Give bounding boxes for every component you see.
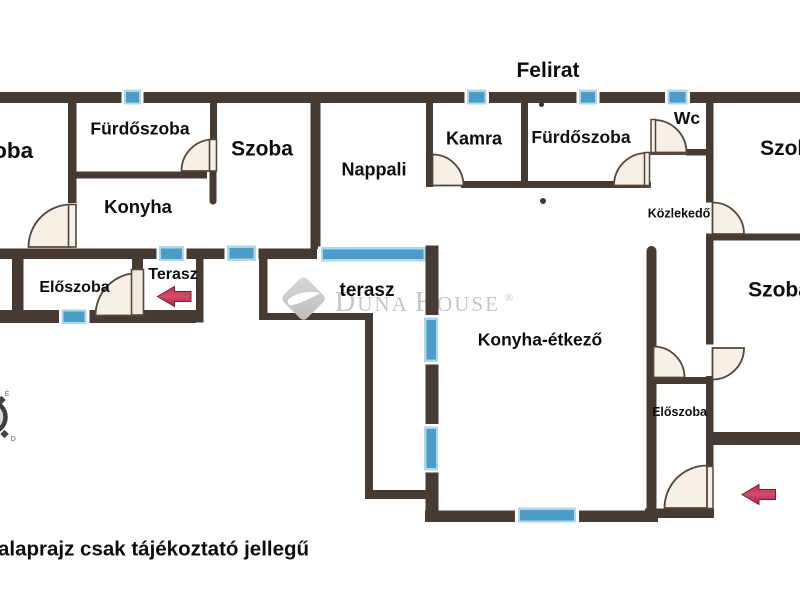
svg-text:Fürdőszoba: Fürdőszoba (531, 127, 630, 147)
svg-text:Kamra: Kamra (446, 129, 503, 149)
svg-text:Wc: Wc (674, 108, 701, 128)
svg-text:Felirat: Felirat (516, 59, 579, 82)
svg-text:É: É (5, 389, 10, 398)
svg-text:Közlekedő: Közlekedő (648, 207, 711, 221)
svg-text:alaprajz csak tájékoztató jell: alaprajz csak tájékoztató jellegű (0, 538, 309, 561)
svg-text:Terasz: Terasz (148, 266, 198, 283)
svg-text:terasz: terasz (340, 280, 395, 301)
svg-text:Szoba: Szoba (748, 279, 800, 302)
svg-text:Konyha-étkező: Konyha-étkező (478, 330, 602, 350)
svg-text:Konyha: Konyha (104, 196, 173, 217)
svg-text:Szoba: Szoba (0, 138, 34, 163)
svg-text:D: D (11, 434, 17, 443)
svg-text:Fürdőszoba: Fürdőszoba (90, 119, 189, 139)
svg-text:Előszoba: Előszoba (39, 279, 109, 296)
svg-text:Szoba: Szoba (760, 137, 800, 160)
svg-text:Nappali: Nappali (341, 160, 406, 180)
svg-text:Előszoba: Előszoba (652, 405, 708, 419)
svg-text:Szoba: Szoba (231, 138, 293, 161)
